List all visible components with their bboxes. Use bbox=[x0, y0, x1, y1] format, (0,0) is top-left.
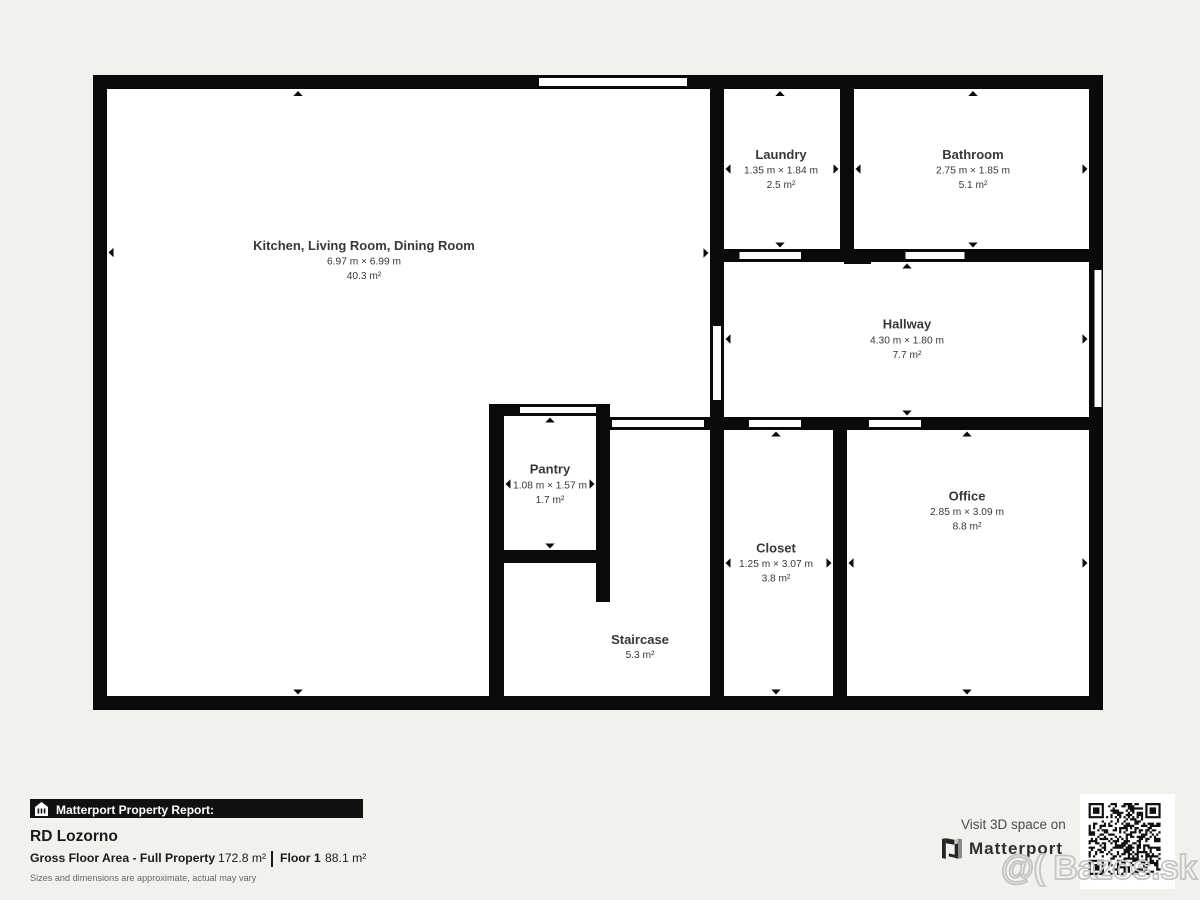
svg-text:1.08 m × 1.57 m: 1.08 m × 1.57 m bbox=[513, 481, 587, 492]
svg-text:8.8 m²: 8.8 m² bbox=[953, 522, 982, 533]
svg-text:5.3 m²: 5.3 m² bbox=[626, 650, 655, 661]
svg-text:2.75 m × 1.85 m: 2.75 m × 1.85 m bbox=[936, 166, 1010, 177]
svg-text:3.8 m²: 3.8 m² bbox=[762, 574, 791, 585]
svg-text:1.7 m²: 1.7 m² bbox=[536, 495, 565, 506]
svg-text:4.30 m × 1.80 m: 4.30 m × 1.80 m bbox=[870, 336, 944, 347]
svg-text:7.7 m²: 7.7 m² bbox=[893, 350, 922, 361]
svg-text:Pantry: Pantry bbox=[530, 462, 571, 477]
svg-text:40.3 m²: 40.3 m² bbox=[347, 271, 382, 282]
svg-text:Hallway: Hallway bbox=[883, 317, 932, 332]
svg-text:Bathroom: Bathroom bbox=[942, 147, 1003, 162]
svg-text:6.97 m × 6.99 m: 6.97 m × 6.99 m bbox=[327, 257, 401, 268]
svg-text:5.1 m²: 5.1 m² bbox=[959, 180, 988, 191]
svg-text:Laundry: Laundry bbox=[755, 147, 807, 162]
svg-text:Kitchen, Living Room, Dining R: Kitchen, Living Room, Dining Room bbox=[253, 238, 475, 253]
svg-text:Staircase: Staircase bbox=[611, 632, 669, 647]
svg-text:2.5 m²: 2.5 m² bbox=[767, 180, 796, 191]
svg-text:2.85 m × 3.09 m: 2.85 m × 3.09 m bbox=[930, 507, 1004, 518]
svg-text:Closet: Closet bbox=[756, 541, 796, 556]
svg-text:1.35 m × 1.84 m: 1.35 m × 1.84 m bbox=[744, 166, 818, 177]
svg-text:1.25 m × 3.07 m: 1.25 m × 3.07 m bbox=[739, 559, 813, 570]
svg-text:Office: Office bbox=[949, 489, 986, 504]
